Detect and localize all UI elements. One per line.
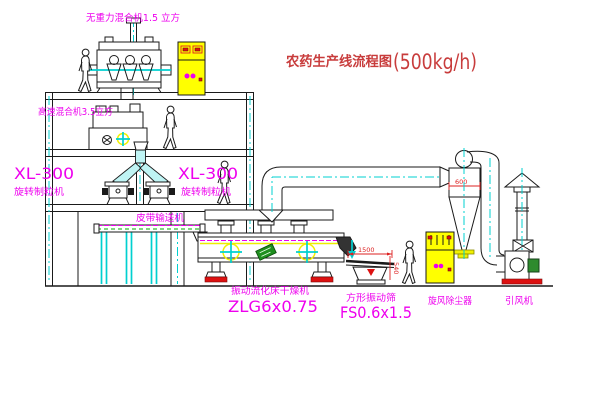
- cabinet-indicator-icon: [185, 74, 190, 79]
- fluid-bed-dryer: [198, 210, 356, 282]
- label-dryer-name: 振动流化床干燥机: [231, 285, 309, 297]
- dryer-stub-pipes: [218, 220, 307, 233]
- label-high-speed-mixer: 高速混合机3.5立方: [38, 106, 113, 118]
- person-figure: [403, 241, 416, 283]
- label-sieve-model: FS0.6x1.5: [340, 303, 412, 322]
- belt-conveyor: [94, 224, 207, 284]
- drawing-title-capacity: (500kg/h): [393, 50, 477, 74]
- dryer-legs: [205, 262, 333, 282]
- sieve-height-dim: 540: [392, 262, 400, 274]
- person-figure: [164, 106, 177, 148]
- induced-draft-fan: [496, 251, 542, 284]
- conveyor-legs: [100, 232, 158, 284]
- control-cabinet-right: [426, 232, 454, 283]
- label-granulator-right-name: 旋转制粒机: [181, 186, 232, 198]
- cabinet-indicator-icon: [434, 264, 439, 269]
- gravity-free-mixer: [87, 18, 171, 100]
- process-flow-drawing: 600 1500: [0, 0, 600, 403]
- label-gravity-free-mixer: 无重力混合机1.5 立方: [86, 12, 180, 24]
- label-dryer-model: ZLG6x0.75: [228, 297, 318, 316]
- fan-motor: [528, 259, 539, 272]
- granulator-left: [102, 182, 134, 205]
- person-figure: [79, 49, 92, 91]
- cyclone-diameter-dim: 600: [455, 178, 467, 186]
- label-fan: 引风机: [505, 295, 533, 307]
- label-granulator-right-model: XL-300: [178, 164, 238, 183]
- granulator-right: [143, 182, 175, 205]
- y-splitter-pipe: [106, 150, 170, 186]
- label-belt-conveyor: 皮带输送机: [136, 212, 184, 224]
- control-cabinet-top: [178, 42, 205, 95]
- fan-base: [502, 279, 542, 284]
- sieve-length-dim: 1500: [358, 246, 375, 254]
- drawing-title: 农药生产线流程图: [285, 53, 392, 70]
- label-granulator-left-name: 旋转制粒机: [14, 186, 65, 198]
- label-cyclone: 旋风除尘器: [428, 295, 472, 307]
- label-granulator-left-model: XL-300: [14, 164, 74, 183]
